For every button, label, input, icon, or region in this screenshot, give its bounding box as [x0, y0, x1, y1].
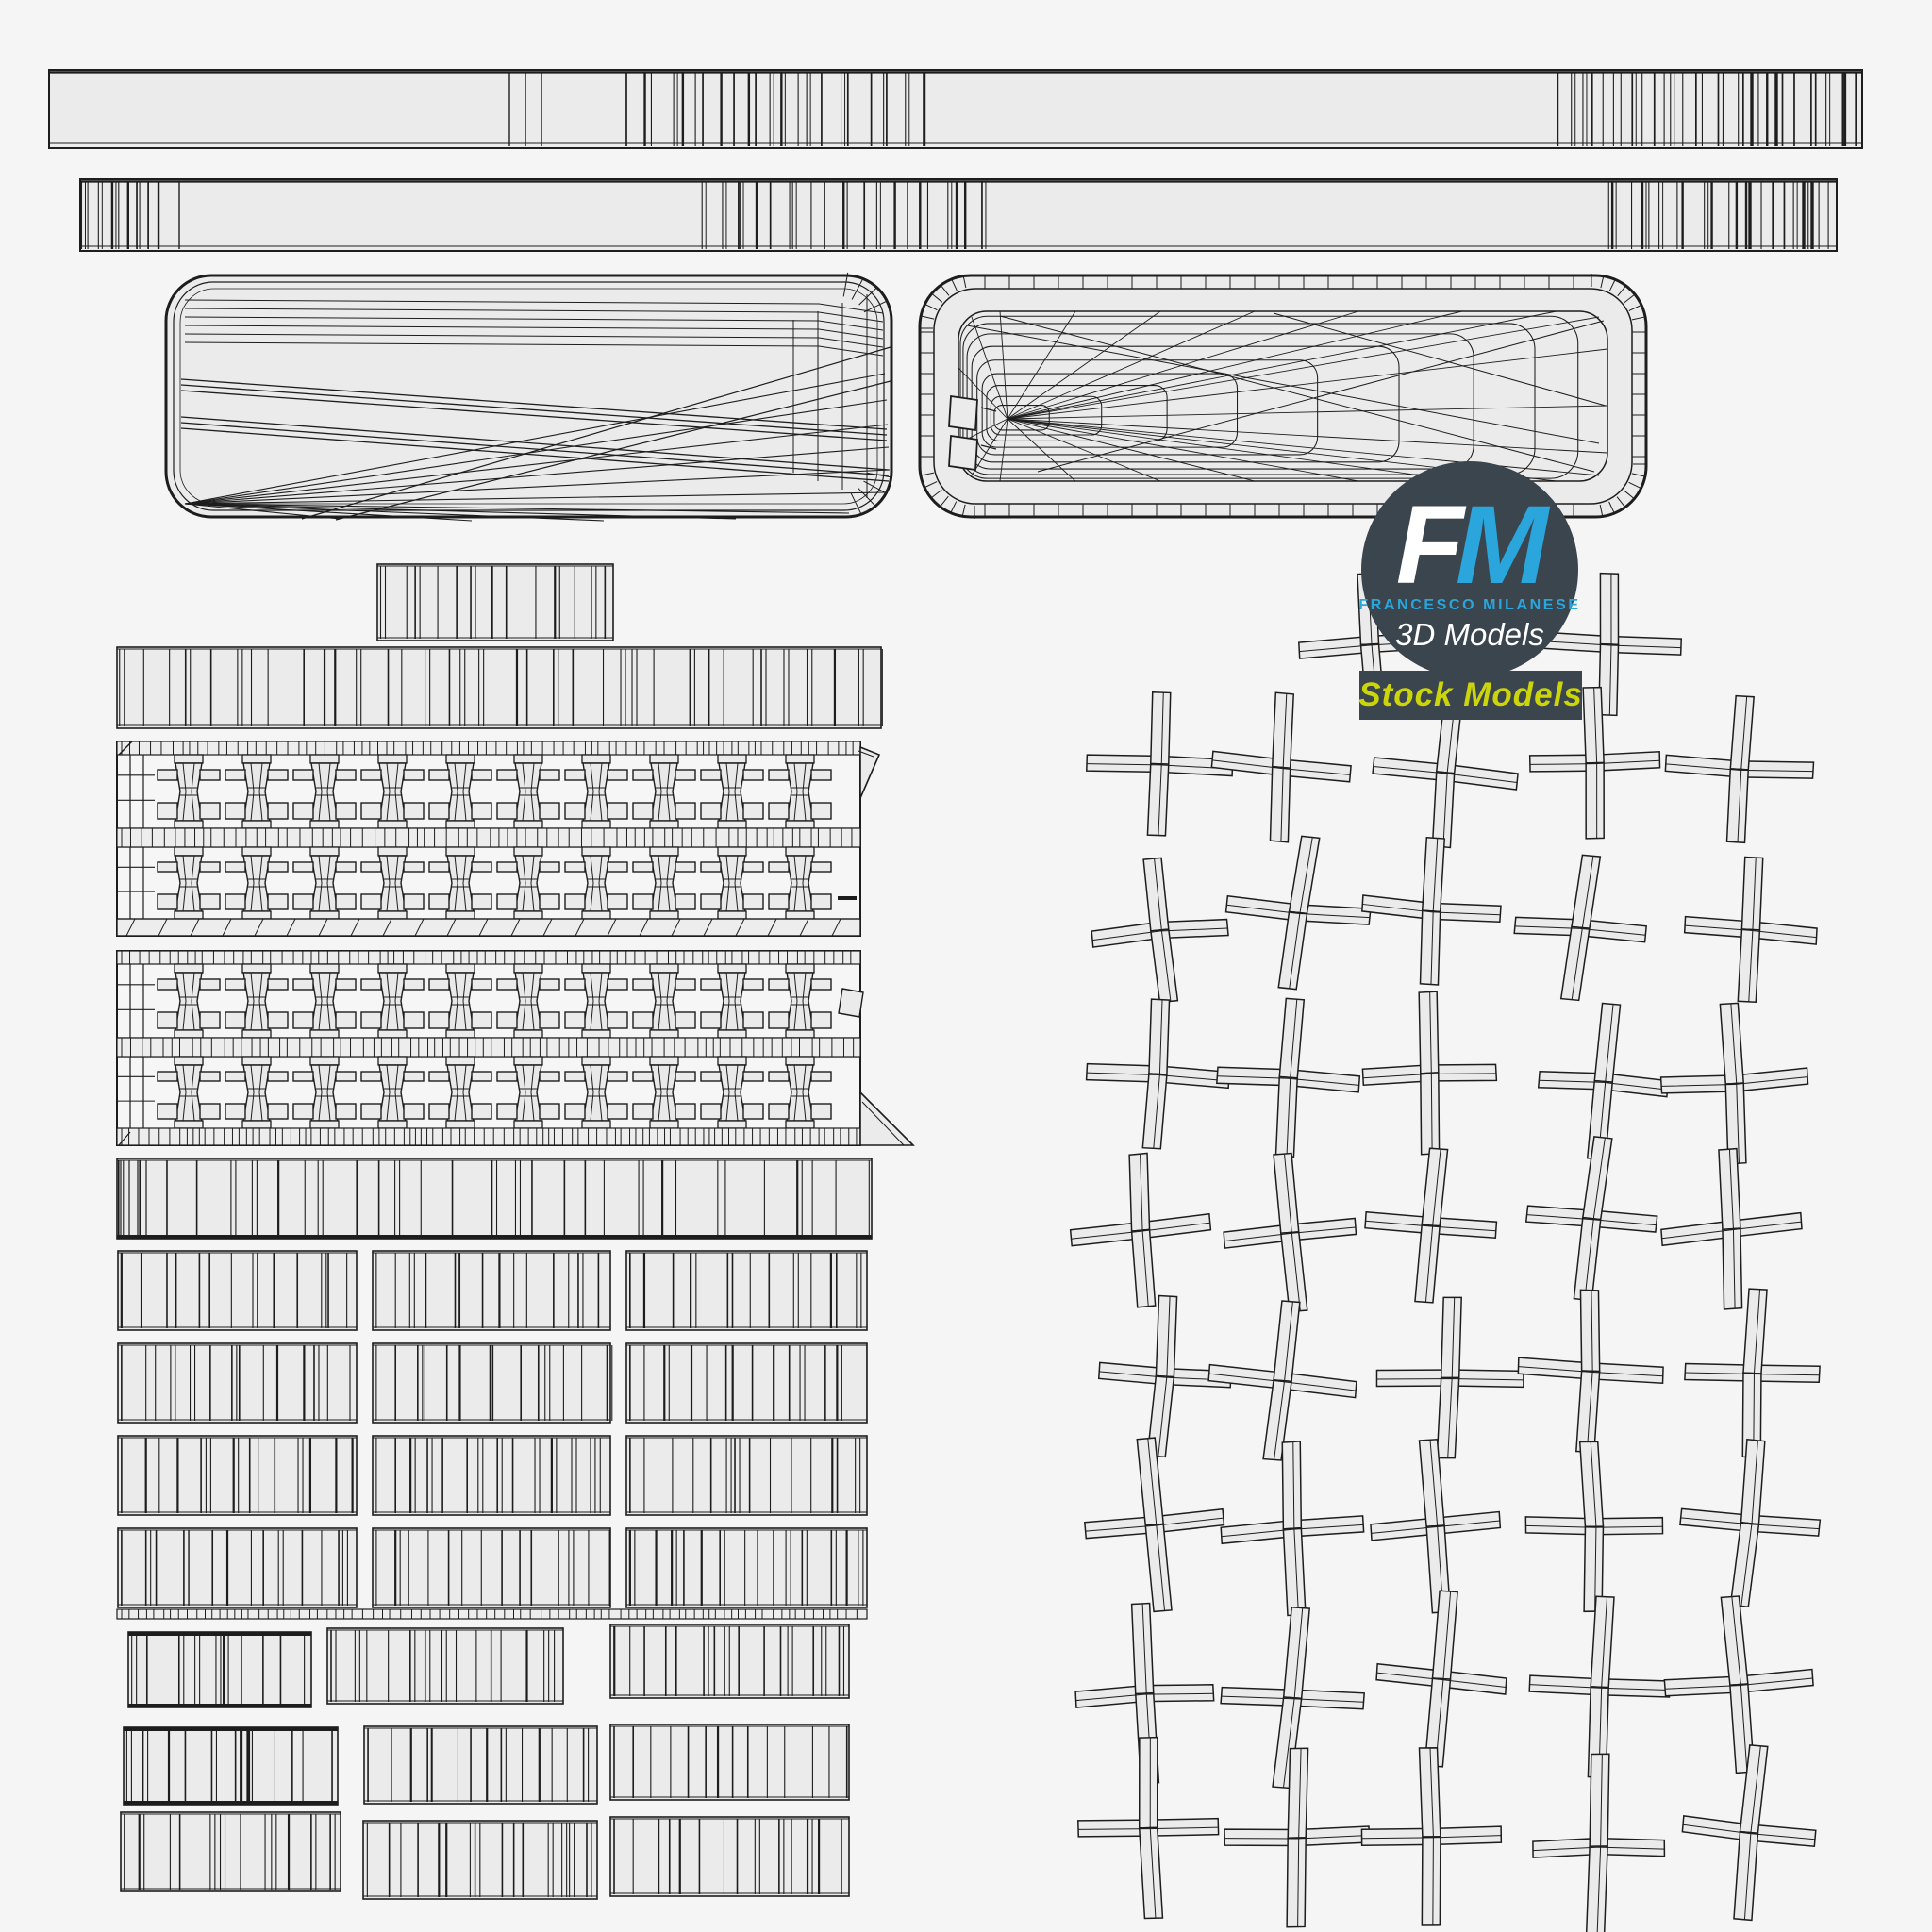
- scissor-cross-part: [1064, 1148, 1217, 1312]
- scissor-cross-part: [1219, 829, 1377, 996]
- logo-letter-f: F: [1396, 483, 1459, 608]
- scissor-cross-part: [1206, 688, 1357, 847]
- key-plate-band-upper: [117, 741, 879, 936]
- key-row-grid: [118, 1251, 867, 1899]
- scissor-cross-part: [1365, 1436, 1506, 1617]
- scissor-cross-part: [1224, 1747, 1371, 1928]
- scissor-cross-part: [1658, 1591, 1819, 1777]
- logo-letter-m: M: [1456, 483, 1543, 608]
- scissor-cross-part: [1376, 1297, 1524, 1457]
- scissor-cross-part: [1675, 1740, 1823, 1924]
- scissor-cross-part: [1357, 834, 1505, 989]
- scissor-cross-part: [1083, 996, 1233, 1153]
- logo-subtitle: 3D Models: [1395, 617, 1544, 653]
- scissor-cross-part: [1673, 1434, 1827, 1614]
- scissor-cross-part: [1075, 1736, 1220, 1920]
- top-strip-a: [49, 70, 1862, 148]
- logo-monogram: FM: [1396, 500, 1543, 591]
- scissor-cross-part: [1532, 1754, 1665, 1932]
- scissor-cross-part: [1681, 855, 1821, 1006]
- scissor-cross-part: [1360, 1144, 1501, 1307]
- scissor-cross-part: [1508, 849, 1652, 1006]
- scissor-cross-part: [1086, 853, 1234, 1008]
- shell-bottom-tub: [920, 274, 1646, 519]
- scissor-cross-part: [1212, 994, 1365, 1161]
- scissor-cross-part: [1216, 1438, 1369, 1619]
- scissor-cross-part: [1516, 1288, 1666, 1454]
- scissor-cross-part: [1524, 1441, 1663, 1612]
- key-plate-band-lower: [117, 951, 913, 1145]
- logo-owner-name: FRANCESCO MILANESE: [1358, 597, 1580, 614]
- scissor-cross-part: [1203, 1296, 1362, 1466]
- scissor-cross-part: [1525, 1593, 1674, 1780]
- top-strip-b: [80, 179, 1837, 251]
- scissor-cross-part: [1358, 989, 1500, 1158]
- scissor-cross-part: [1661, 692, 1817, 847]
- scissor-cross-part: [1218, 1149, 1361, 1316]
- scissor-cross-part: [1372, 1587, 1512, 1770]
- scissor-cross-part: [1519, 1130, 1665, 1307]
- wireframe-drawing: [0, 0, 1932, 1932]
- wireframe-sheet: FM FRANCESCO MILANESE 3D Models Stock Mo…: [0, 0, 1932, 1932]
- scissor-cross-grid: [1064, 570, 1827, 1932]
- scissor-cross-part: [1360, 1747, 1502, 1926]
- scissor-cross-part: [1078, 1433, 1231, 1617]
- scissor-cross-part: [1681, 1286, 1824, 1460]
- stock-models-label: Stock Models: [1358, 676, 1583, 714]
- scissor-cross-part: [1656, 1144, 1807, 1313]
- stock-models-badge: Stock Models: [1359, 671, 1582, 720]
- shell-top-panel: [166, 273, 891, 521]
- fm-logo-badge: FM FRANCESCO MILANESE 3D Models: [1361, 461, 1578, 678]
- scissor-cross-part: [1657, 999, 1812, 1167]
